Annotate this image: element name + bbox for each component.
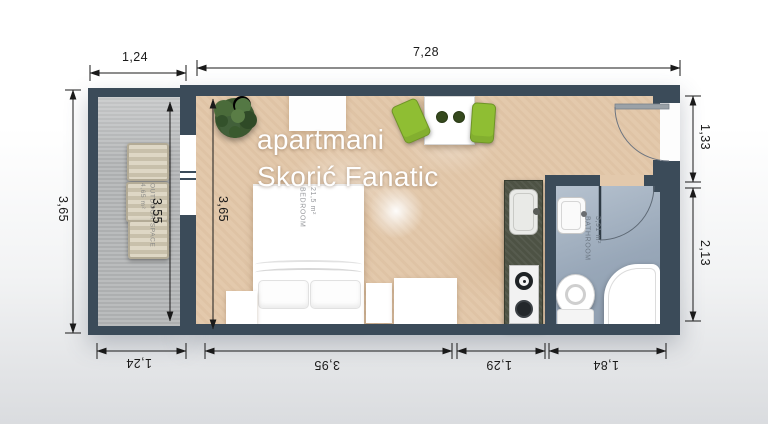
dim-right-upper: 1,33 [698, 124, 712, 150]
dim-bottom-kitchen: 1,29 [486, 358, 512, 372]
burner-icon [515, 300, 533, 318]
stove-cooktop [509, 265, 539, 324]
title-line-2: Skorić Fanatic [257, 158, 439, 195]
dim-right-lower: 2,13 [698, 240, 712, 266]
dim-top-outdoor: 1,24 [122, 50, 148, 64]
bathroom-area: 3,91 m² [592, 216, 603, 261]
window-bedroom-outdoor [180, 135, 196, 215]
wall-bathroom-top [545, 175, 600, 186]
bathroom-name: BATHROOM [581, 216, 592, 261]
nightstand [226, 291, 257, 324]
burner-center-dot [523, 280, 526, 283]
entry-door-opening [660, 103, 680, 161]
wall-main-bottom [185, 324, 680, 335]
plant-icon [210, 92, 260, 142]
dim-top-main: 7,28 [413, 45, 439, 59]
bathroom-door-opening [600, 175, 644, 186]
dim-bottom-bedroom: 3,95 [314, 358, 340, 372]
faucet-icon [533, 208, 540, 215]
bedroom-name: BEDROOM [296, 187, 307, 227]
bed-blanket-fold [255, 268, 362, 277]
plant-foliage [210, 92, 260, 142]
wall-bathroom-left [545, 175, 556, 324]
kitchen-sink [509, 189, 538, 235]
wall-bathroom-top [644, 175, 660, 186]
bedroom-label: BEDROOM 21,5 m² [296, 187, 317, 227]
wall-corner-topright [653, 85, 680, 105]
bathtub-rim [608, 268, 656, 324]
dim-bottom-bathroom: 1,84 [593, 358, 619, 372]
dresser [394, 278, 457, 324]
floorplan-canvas: apartmani Skorić Fanatic BEDROOM 21,5 m²… [0, 0, 768, 424]
plate-icon [453, 111, 465, 123]
outdoor-lounger-chair [127, 143, 169, 181]
dresser [366, 283, 392, 323]
pillow [258, 280, 309, 309]
dining-chair [470, 102, 497, 144]
apartment-title: apartmani Skorić Fanatic [257, 121, 439, 195]
sink-basin [561, 201, 581, 230]
dim-inner-outdoor: 3,55 [150, 198, 164, 224]
outdoor-area: 4,65 m² [137, 183, 147, 247]
bathroom-label: BATHROOM 3,91 m² [581, 216, 602, 261]
wall-main-top [185, 85, 680, 96]
dim-inner-bedroom: 3,65 [216, 196, 230, 222]
wall-outdoor-bottom [88, 326, 185, 335]
dim-bottom-outdoor: 1,24 [126, 356, 152, 370]
toilet-seat-ring [565, 284, 586, 305]
wall-outdoor-left [88, 88, 98, 335]
dim-left-outdoor: 3,65 [56, 196, 70, 222]
title-line-1: apartmani [257, 121, 439, 158]
bedroom-area: 21,5 m² [307, 187, 318, 227]
sink-basin [513, 193, 534, 231]
wall-outdoor-top [88, 88, 185, 97]
pillow [310, 280, 361, 309]
